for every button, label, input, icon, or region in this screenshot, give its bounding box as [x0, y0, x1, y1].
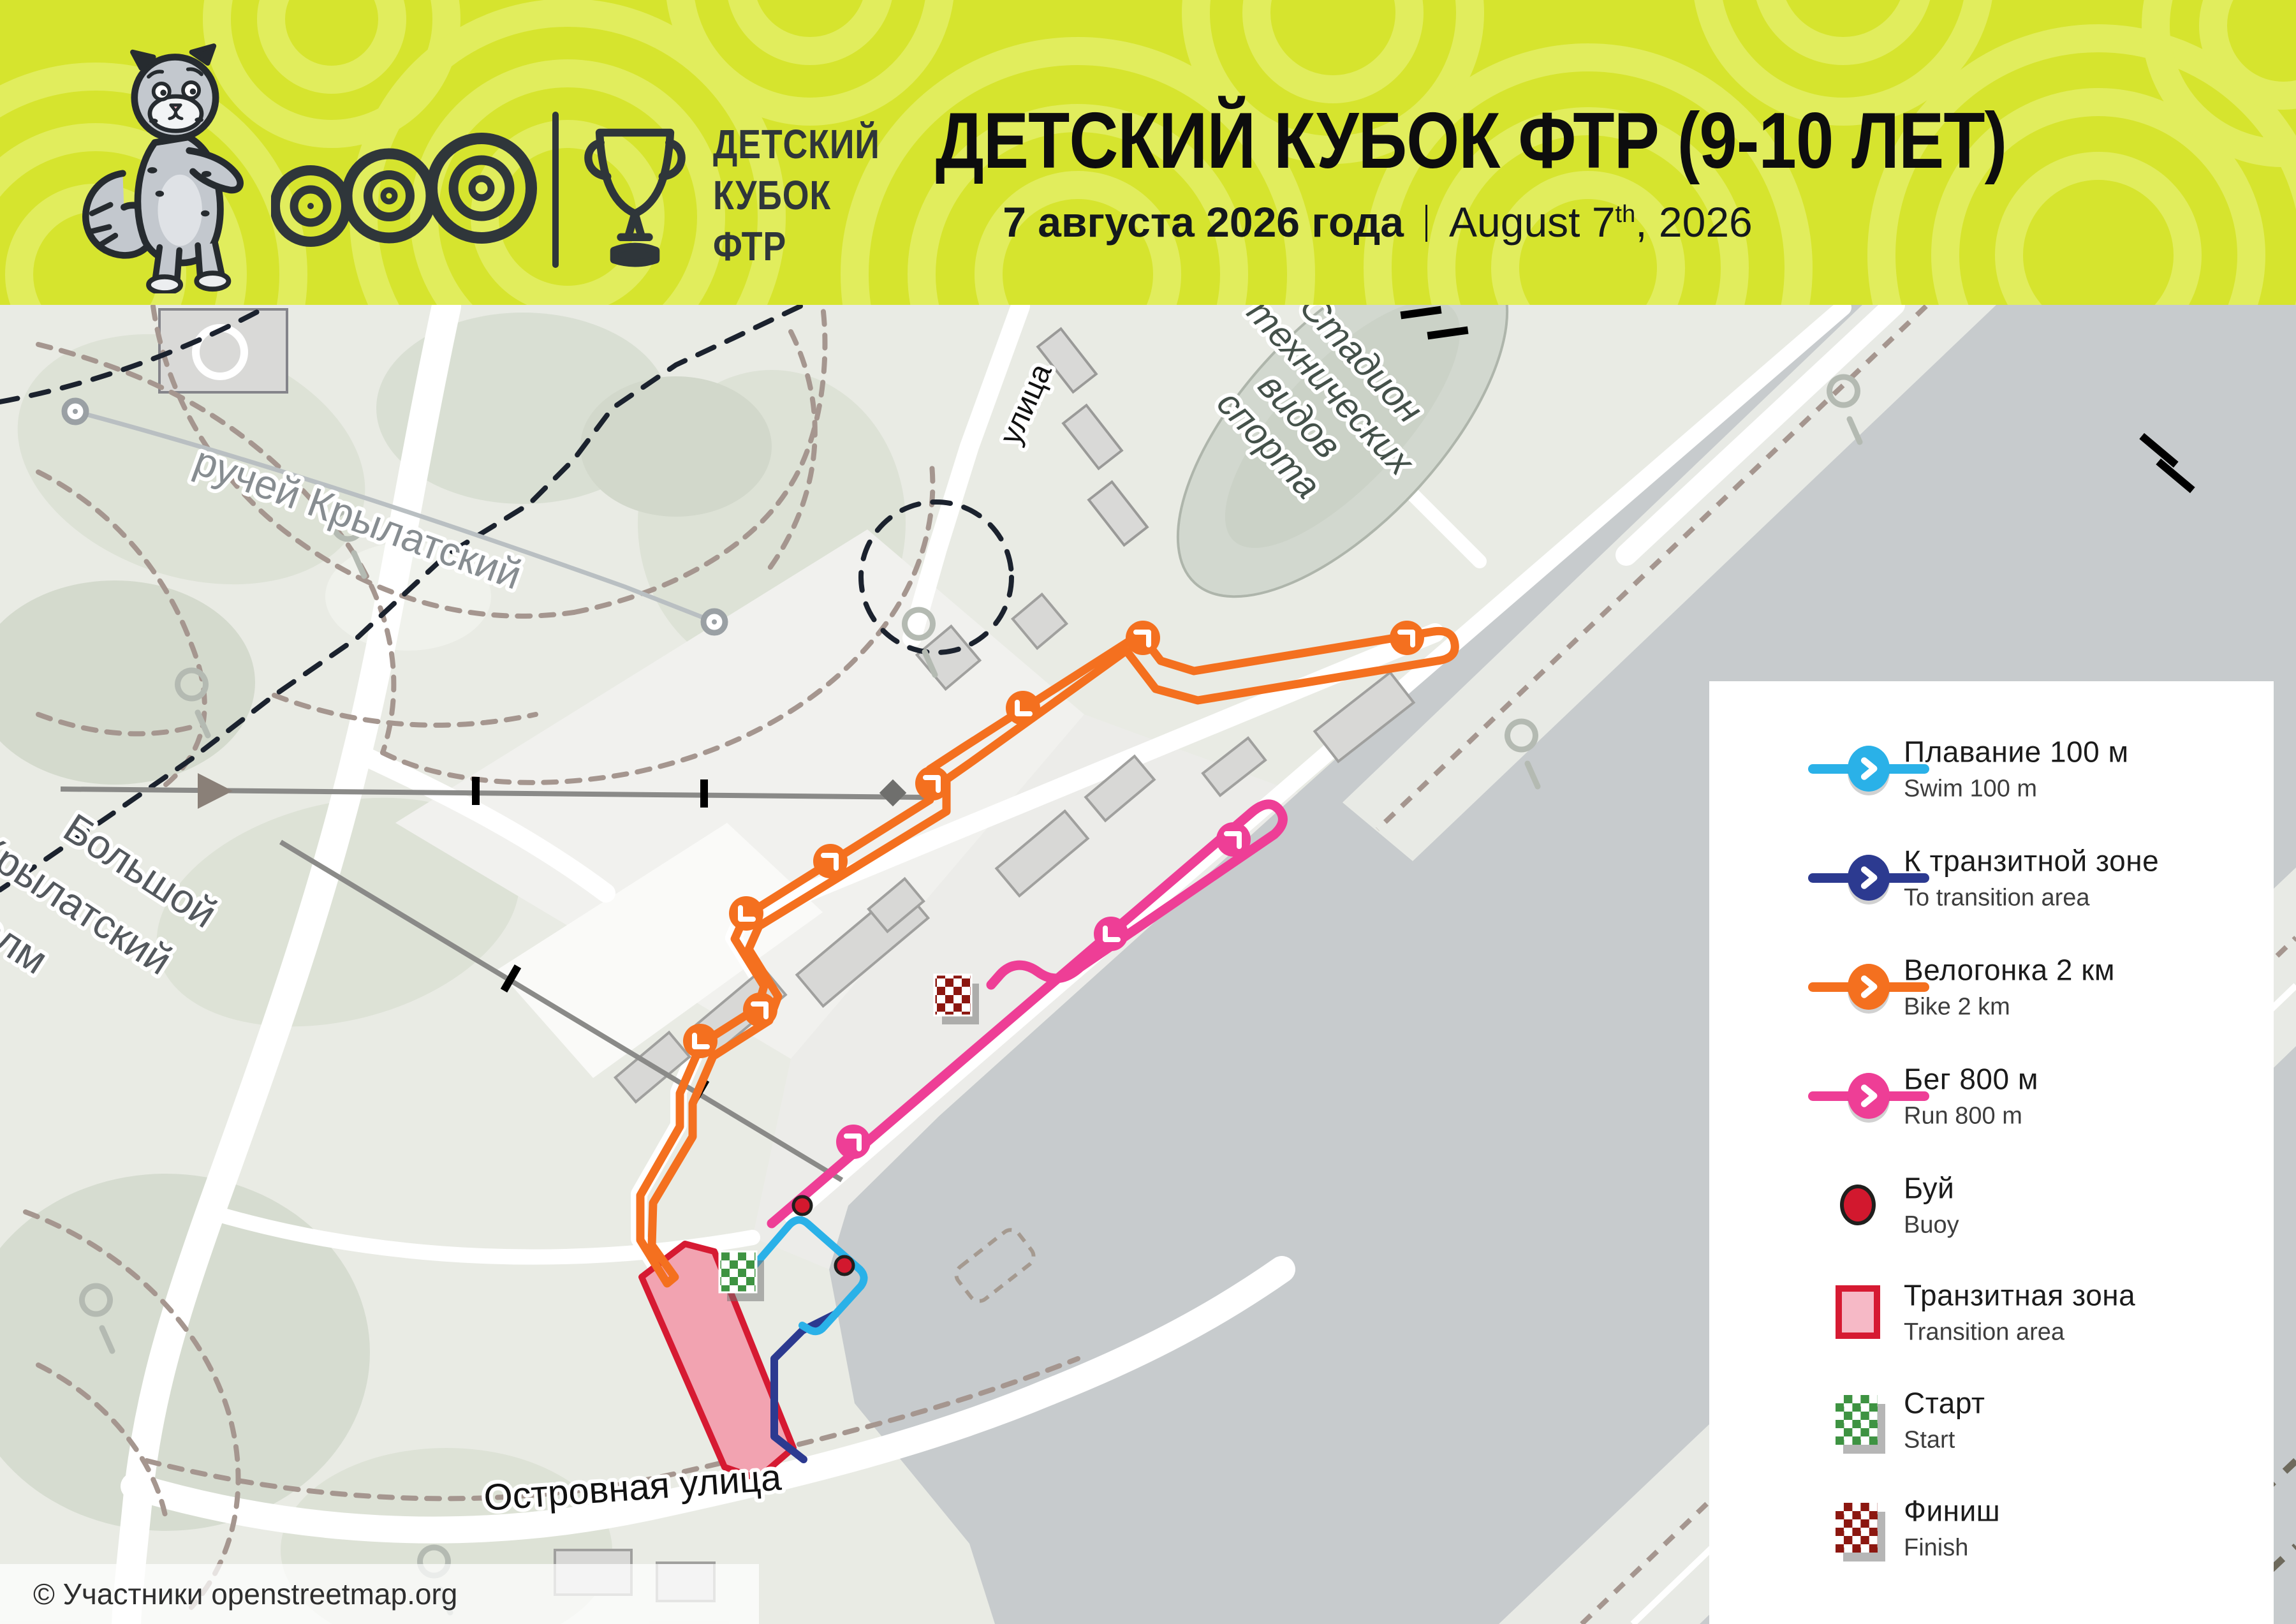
turn-left-marker [683, 1024, 717, 1058]
target-circles-logo [271, 124, 539, 262]
legend-label-ru: Финиш [1904, 1494, 2000, 1528]
turn-left-marker [1006, 691, 1040, 725]
legend-label-ru: Плавание 100 м [1904, 735, 2129, 769]
legend-label-en: Bike 2 km [1904, 994, 2115, 1021]
turn-right-marker [836, 1125, 871, 1159]
title-block: ДЕТСКИЙ КУБОК ФТР (9-10 ЛЕТ) 7 августа 2… [848, 96, 1907, 246]
event-title: ДЕТСКИЙ КУБОК ФТР (9-10 ЛЕТ) [936, 96, 2007, 186]
legend-label-ru: Старт [1904, 1386, 1985, 1421]
turn-right-marker [1126, 621, 1160, 655]
date-english: August 7th, 2026 [1449, 198, 1753, 246]
legend-label-ru: Транзитная зона [1904, 1278, 2135, 1313]
date-russian: 7 августа 2026 года [1003, 198, 1404, 246]
trophy-icon [576, 114, 694, 274]
legend-label-en: Buoy [1904, 1212, 1959, 1239]
logo-divider [552, 112, 559, 268]
legend-label-ru: Бег 800 м [1904, 1062, 2038, 1096]
legend-panel: Плавание 100 мSwim 100 m К транзитной зо… [1709, 681, 2274, 1624]
legend-label-ru: К транзитной зоне [1904, 844, 2159, 878]
turn-right-marker [743, 993, 777, 1027]
legend-label-en: Start [1904, 1427, 1985, 1454]
osm-attribution: © Участники openstreetmap.org [0, 1564, 759, 1624]
turn-left-marker [1094, 917, 1128, 951]
turn-right-marker [1216, 822, 1251, 857]
date-separator [1425, 205, 1427, 242]
turn-right-marker [1390, 621, 1424, 655]
event-course-poster: ДЕТСКИЙ КУБОК ФТР ДЕТСКИЙ КУБОК ФТР (9-1… [0, 0, 2296, 1624]
attribution-text: © Участники openstreetmap.org [33, 1577, 457, 1611]
turn-left-marker [729, 896, 763, 931]
legend-label-en: Run 800 m [1904, 1103, 2038, 1130]
legend-label-en: Transition area [1904, 1319, 2135, 1347]
spring-icon [64, 401, 86, 422]
header-banner: ДЕТСКИЙ КУБОК ФТР ДЕТСКИЙ КУБОК ФТР (9-1… [0, 0, 2296, 305]
spring-icon [703, 611, 725, 633]
legend-label-ru: Буй [1904, 1171, 1959, 1206]
legend-label-ru: Велогонка 2 км [1904, 953, 2115, 987]
legend-label-en: Swim 100 m [1904, 776, 2129, 803]
turn-right-marker [915, 766, 950, 801]
legend-label-en: To transition area [1904, 885, 2159, 912]
legend-label-en: Finish [1904, 1535, 2000, 1562]
snow-leopard-mascot [61, 29, 271, 293]
turn-right-marker [813, 844, 848, 878]
event-date: 7 августа 2026 годаAugust 7th, 2026 [848, 198, 1907, 246]
